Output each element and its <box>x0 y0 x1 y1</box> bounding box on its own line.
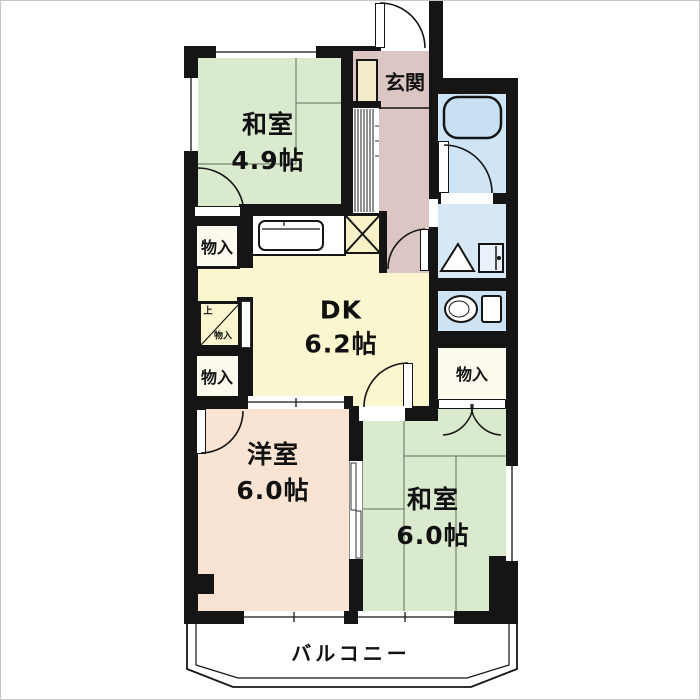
door-leaf-entry <box>375 3 385 48</box>
room-area: 4.9帖 <box>231 141 304 177</box>
storage-name: 物入 <box>456 365 488 384</box>
door-leaf-youshitsu <box>196 409 206 454</box>
storage-name: 物入 <box>201 368 233 387</box>
double-door-opening <box>438 399 506 409</box>
shoe-cabinet <box>356 59 378 103</box>
room-name: DK <box>304 296 377 325</box>
entry-door-arc <box>380 3 425 48</box>
window-youshitsu-top <box>248 396 344 409</box>
room-name: 洋室 <box>236 435 309 471</box>
window-balcony-right <box>358 611 454 624</box>
wall-left-col-e <box>239 351 253 401</box>
label-storage-left-top: 物入 <box>201 234 233 258</box>
room-youshitsu <box>191 401 353 616</box>
closet-door-strip <box>375 108 379 213</box>
door-leaf-dk-washitsu60 <box>403 363 413 409</box>
label-nook-bottom: 物入 <box>214 329 232 342</box>
room-area: 6.0帖 <box>396 516 469 552</box>
room-name: バルコニー <box>291 642 411 666</box>
room-area: 6.2帖 <box>304 325 377 361</box>
opening-dk-washitsu60 <box>359 406 405 421</box>
storage-name: 物入 <box>201 238 233 257</box>
label-balcony: バルコニー <box>291 638 411 667</box>
closet-stripe-area <box>353 108 375 213</box>
label-genkan: 玄関 <box>385 67 425 96</box>
wall-partition-rooms <box>349 409 363 613</box>
room-area: 6.0帖 <box>236 471 309 507</box>
label-washitsu-60: 和室 6.0帖 <box>396 480 469 552</box>
wall-washitsu-right <box>341 46 353 213</box>
floor-plan: 和室 4.9帖 玄関 DK 6.2帖 洋室 6.0帖 和室 6.0帖 バルコニー… <box>0 0 700 700</box>
window-balcony-left <box>244 611 344 624</box>
room-name: 玄関 <box>385 71 425 95</box>
room-toilet <box>438 291 506 331</box>
door-leaf-washitsu49 <box>194 206 241 217</box>
door-leaf-bath <box>438 141 449 193</box>
opening-bath-door <box>441 193 493 204</box>
window-left <box>184 78 198 151</box>
label-storage-right: 物入 <box>456 361 488 385</box>
window-right <box>506 466 518 561</box>
wall-notch-bl <box>198 574 214 594</box>
nook-text: 上 <box>203 307 212 317</box>
room-name: 和室 <box>396 480 469 516</box>
nook-door-strip <box>241 301 251 348</box>
room-name: 和室 <box>231 105 304 141</box>
wall-bath-top <box>429 78 518 94</box>
label-storage-left-bottom: 物入 <box>201 364 233 388</box>
window-top <box>216 46 316 58</box>
wall-notch-br <box>489 556 518 613</box>
nook-text: 物入 <box>214 332 232 342</box>
label-washitsu-49: 和室 4.9帖 <box>231 105 304 177</box>
door-leaf-hall-dk <box>420 229 429 271</box>
label-youshitsu: 洋室 6.0帖 <box>236 435 309 507</box>
label-dk: DK 6.2帖 <box>304 296 377 361</box>
label-nook-top: 上 <box>203 304 212 317</box>
opening-washroom-door <box>429 199 438 227</box>
stove-box <box>344 214 381 254</box>
room-washroom <box>438 204 506 278</box>
kitchen-counter <box>251 214 346 256</box>
